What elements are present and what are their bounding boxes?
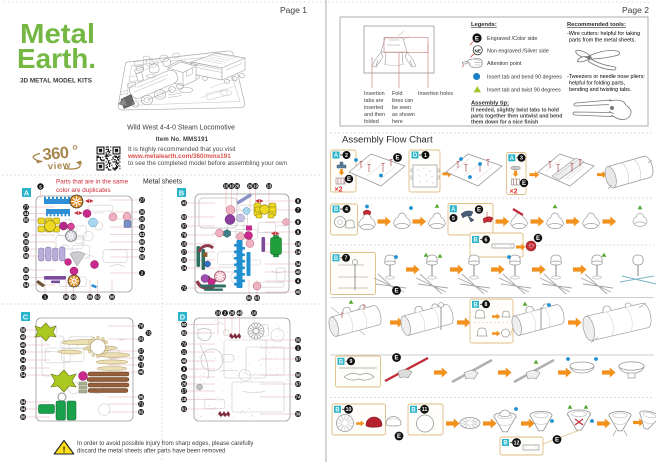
svg-text:65: 65 [140, 255, 145, 260]
svg-text:64: 64 [24, 283, 29, 288]
svg-text:66: 66 [139, 395, 144, 400]
svg-text:Earth.: Earth. [17, 43, 96, 74]
svg-text:34: 34 [21, 358, 26, 363]
svg-text:E: E [395, 156, 399, 162]
svg-text:70: 70 [139, 324, 144, 329]
svg-text:Assembly Flow Chart: Assembly Flow Chart [342, 135, 433, 146]
svg-text:39: 39 [296, 412, 301, 417]
svg-text:1: 1 [424, 153, 427, 159]
svg-text:18: 18 [140, 225, 145, 230]
svg-text:92: 92 [95, 295, 100, 300]
svg-text:72: 72 [146, 331, 151, 336]
svg-text:E: E [477, 208, 481, 214]
svg-text:D: D [180, 312, 186, 321]
svg-text:22: 22 [21, 366, 26, 371]
svg-text:be seen: be seen [392, 105, 411, 111]
svg-text:60: 60 [247, 296, 252, 301]
svg-text:17: 17 [182, 389, 187, 394]
svg-text:It is highly recommended that: It is highly recommended that you visit [128, 146, 236, 153]
svg-text:Insert tab and twist 90 degree: Insert tab and twist 90 degrees [487, 88, 561, 94]
svg-text:×2: ×2 [510, 189, 518, 196]
svg-text:E: E [394, 356, 398, 362]
svg-text:80: 80 [21, 415, 26, 420]
svg-text:inserted: inserted [364, 105, 383, 111]
svg-text:B: B [411, 408, 416, 414]
svg-text:2: 2 [345, 153, 348, 159]
svg-text:E: E [475, 36, 479, 43]
svg-text:Non engraved /Silver side: Non engraved /Silver side [487, 49, 549, 55]
svg-text:64: 64 [140, 247, 145, 252]
svg-text:Engraved /Color side: Engraved /Color side [487, 36, 537, 42]
svg-text:82: 82 [182, 331, 187, 336]
svg-text:www.metalearth.com/360/mms191: www.metalearth.com/360/mms191 [127, 153, 231, 160]
svg-text:Attention point: Attention point [487, 61, 522, 67]
svg-text:A: A [24, 188, 30, 197]
svg-text:54: 54 [21, 373, 26, 378]
svg-text:B: B [334, 207, 339, 213]
svg-text:E: E [522, 181, 526, 187]
svg-text:48: 48 [182, 359, 187, 364]
svg-text:-Tweezers or needle nose plier: -Tweezers or needle nose pliers: [567, 74, 645, 80]
svg-text:53: 53 [139, 337, 144, 342]
svg-text:B: B [334, 256, 339, 262]
svg-text:6: 6 [485, 237, 488, 243]
svg-text:Wild West 4-4-0 Steam Locomoti: Wild West 4-4-0 Steam Locomotive [127, 125, 235, 132]
svg-text:94: 94 [21, 407, 26, 412]
svg-text:A: A [510, 156, 515, 162]
svg-text:12: 12 [514, 440, 520, 446]
svg-text:71: 71 [139, 402, 144, 407]
svg-text:26: 26 [182, 382, 187, 387]
svg-text:90: 90 [110, 295, 115, 300]
svg-text:E: E [536, 236, 540, 242]
svg-text:-Wire cutters: helpful for tak: -Wire cutters: helpful for taking [567, 31, 640, 37]
svg-text:Item No. MMS191: Item No. MMS191 [156, 137, 209, 143]
svg-text:5: 5 [39, 185, 42, 190]
svg-text:46: 46 [139, 370, 144, 375]
svg-text:B: B [179, 188, 185, 197]
svg-text:20: 20 [140, 217, 145, 222]
svg-text:Metal sheets: Metal sheets [143, 179, 183, 186]
svg-text:3D METAL MODEL KITS: 3D METAL MODEL KITS [20, 78, 93, 85]
svg-text:Assembly tip:: Assembly tip: [471, 101, 509, 107]
svg-text:62: 62 [139, 410, 144, 415]
svg-text:72: 72 [182, 286, 187, 291]
svg-text:B: B [503, 441, 508, 447]
svg-text:77: 77 [24, 205, 29, 210]
svg-text:27: 27 [140, 198, 145, 203]
svg-text:lines can: lines can [392, 98, 413, 104]
svg-text:8: 8 [485, 302, 488, 308]
svg-text:63: 63 [182, 215, 187, 220]
svg-text:tabs are: tabs are [364, 98, 383, 104]
svg-text:37: 37 [182, 224, 187, 229]
svg-text:72: 72 [182, 342, 187, 347]
svg-text:discard the metal sheets after: discard the metal sheets after parts hav… [77, 449, 225, 455]
svg-text:color are duplicates: color are duplicates [56, 187, 111, 194]
svg-text:35: 35 [24, 268, 29, 273]
svg-text:13: 13 [267, 184, 272, 189]
svg-text:40: 40 [296, 270, 301, 275]
svg-text:60: 60 [140, 240, 145, 245]
svg-text:view: view [47, 160, 71, 173]
svg-text:63: 63 [140, 232, 145, 237]
svg-text:16: 16 [296, 242, 301, 247]
svg-text:23: 23 [216, 311, 221, 316]
svg-text:C: C [23, 312, 29, 321]
svg-text:NE: NE [475, 48, 481, 53]
svg-text:Insertion: Insertion [364, 91, 385, 97]
svg-text:E: E [397, 434, 401, 440]
svg-text:61: 61 [182, 407, 187, 412]
svg-text:50: 50 [296, 338, 301, 343]
svg-text:43: 43 [182, 201, 187, 206]
svg-text:26: 26 [235, 184, 240, 189]
svg-text:Recommended tools:: Recommended tools: [567, 22, 626, 28]
svg-text:96: 96 [64, 295, 69, 300]
svg-text:parts from the metal sheets.: parts from the metal sheets. [569, 38, 636, 44]
svg-text:E: E [347, 177, 351, 183]
svg-text:B: B [339, 360, 344, 366]
svg-text:D: D [413, 153, 418, 159]
svg-text:30: 30 [140, 210, 145, 215]
svg-text:57: 57 [139, 349, 144, 354]
svg-text:27: 27 [182, 250, 187, 255]
svg-text:67: 67 [24, 247, 29, 252]
svg-text:here: here [392, 119, 403, 125]
svg-text:7: 7 [345, 256, 348, 262]
svg-text:E: E [555, 438, 559, 444]
svg-text:67: 67 [296, 382, 301, 387]
svg-text:73: 73 [139, 363, 144, 368]
svg-text:Insertion holes: Insertion holes [418, 91, 453, 97]
svg-text:A: A [334, 153, 339, 159]
svg-text:15: 15 [182, 242, 187, 247]
svg-text:11: 11 [422, 407, 428, 413]
svg-text:as shown: as shown [392, 112, 415, 118]
svg-text:74: 74 [296, 395, 301, 400]
svg-text:60: 60 [296, 373, 301, 378]
svg-text:45: 45 [296, 290, 301, 295]
svg-text:10: 10 [252, 311, 257, 316]
svg-text:Insert tab and bend 90 degrees: Insert tab and bend 90 degrees [487, 75, 562, 81]
svg-text:5: 5 [452, 216, 455, 222]
svg-text:48: 48 [237, 311, 242, 316]
svg-text:10: 10 [346, 407, 352, 413]
svg-text:58: 58 [21, 328, 26, 333]
svg-text:65: 65 [24, 275, 29, 280]
svg-text:Legends:: Legends: [471, 22, 497, 28]
svg-text:40: 40 [21, 343, 26, 348]
svg-text:18: 18 [182, 397, 187, 402]
svg-text:A: A [451, 207, 456, 213]
svg-text:E: E [394, 289, 398, 295]
svg-text:10: 10 [182, 258, 187, 263]
svg-text:bending and twisting tabs.: bending and twisting tabs. [569, 87, 631, 93]
svg-text:In order to avoid possible inj: In order to avoid possible injury from s… [77, 441, 253, 447]
svg-text:9: 9 [350, 359, 353, 365]
svg-text:14: 14 [296, 250, 301, 255]
svg-text:!: ! [63, 445, 66, 455]
svg-text:Fold: Fold [392, 91, 403, 97]
svg-text:41: 41 [21, 350, 26, 355]
svg-text:×2: ×2 [335, 187, 343, 194]
svg-text:Page 1: Page 1 [280, 5, 307, 15]
svg-text:78: 78 [182, 233, 187, 238]
svg-text:76: 76 [139, 356, 144, 361]
svg-text:B: B [473, 238, 478, 244]
svg-text:to see the completed model bef: to see the completed model before assemb… [128, 160, 288, 167]
svg-text:98: 98 [71, 295, 76, 300]
svg-text:24: 24 [182, 266, 187, 271]
svg-text:42: 42 [182, 375, 187, 380]
svg-text:48: 48 [21, 335, 26, 340]
svg-text:87: 87 [296, 357, 301, 362]
svg-text:68: 68 [24, 254, 29, 259]
svg-text:helpful for folding parts,: helpful for folding parts, [569, 81, 626, 87]
svg-text:60: 60 [182, 322, 187, 327]
svg-text:Page 2: Page 2 [622, 5, 649, 15]
svg-text:B: B [473, 303, 478, 309]
svg-text:them down for a nice finish: them down for a nice finish [471, 120, 538, 126]
svg-text:39: 39 [24, 240, 29, 245]
svg-text:38: 38 [24, 233, 29, 238]
svg-text:65: 65 [24, 218, 29, 223]
svg-text:3: 3 [520, 156, 523, 162]
svg-text:34: 34 [296, 262, 301, 267]
svg-text:19: 19 [253, 184, 258, 189]
svg-text:63: 63 [255, 296, 260, 301]
svg-text:and then: and then [364, 112, 385, 118]
svg-text:B: B [335, 408, 340, 414]
svg-text:11: 11 [182, 350, 187, 355]
svg-text:29: 29 [230, 311, 235, 316]
svg-text:99: 99 [88, 295, 93, 300]
svg-text:4: 4 [345, 207, 348, 213]
svg-text:Parts that are in the same: Parts that are in the same [56, 179, 129, 186]
svg-text:44: 44 [24, 211, 29, 216]
svg-text:folded: folded [364, 119, 379, 125]
svg-text:84: 84 [21, 400, 26, 405]
